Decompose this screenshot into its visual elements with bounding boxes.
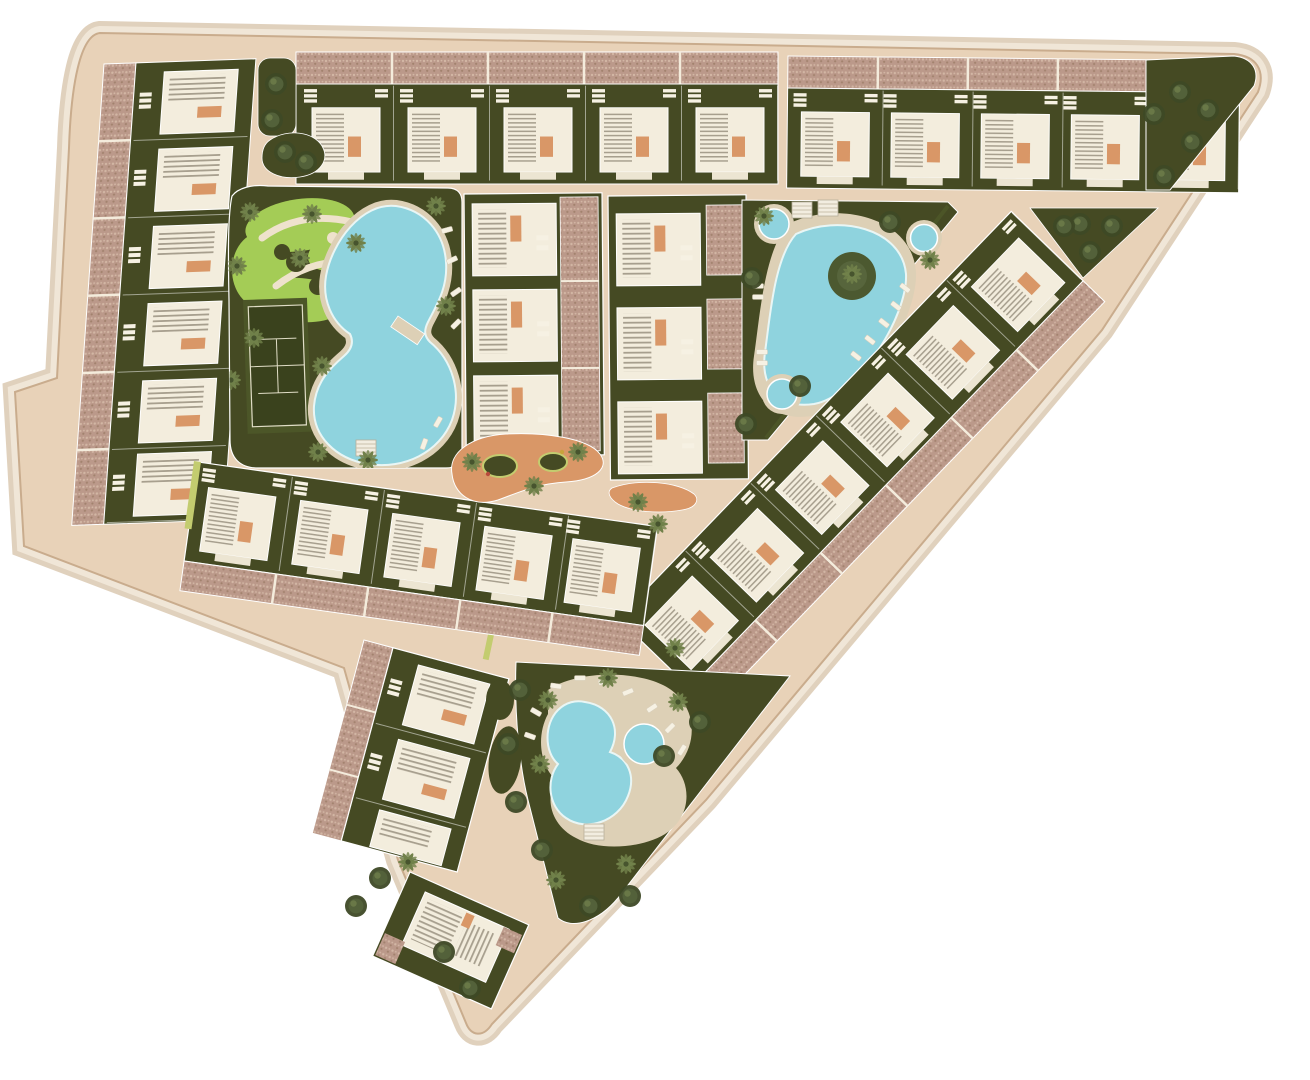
masterplan-svg	[0, 0, 1310, 1080]
zone-central-park	[221, 185, 462, 470]
tennis-court	[243, 298, 312, 434]
site-plan-canvas	[0, 0, 1310, 1080]
round-plunge-pool	[906, 220, 942, 256]
zone-central-block-east	[608, 195, 748, 480]
pool-island-planter	[828, 252, 876, 300]
zone-northwest-townhouse-row	[296, 52, 778, 184]
zone-central-block-west	[464, 193, 604, 456]
